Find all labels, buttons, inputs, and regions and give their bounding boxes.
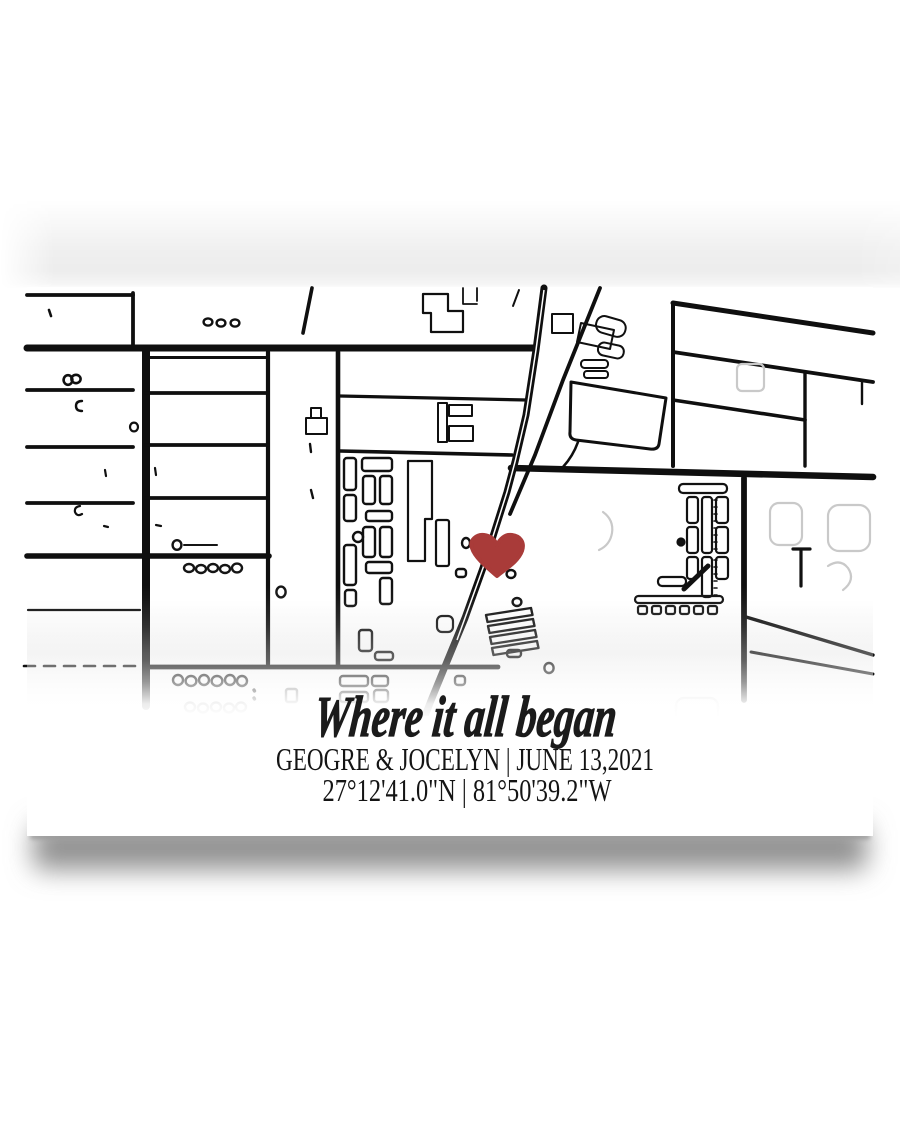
- svg-text:Where it all began: Where it all began: [311, 684, 620, 749]
- svg-text:27°12'41.0"N | 81°50'39.2"W: 27°12'41.0"N | 81°50'39.2"W: [323, 772, 613, 808]
